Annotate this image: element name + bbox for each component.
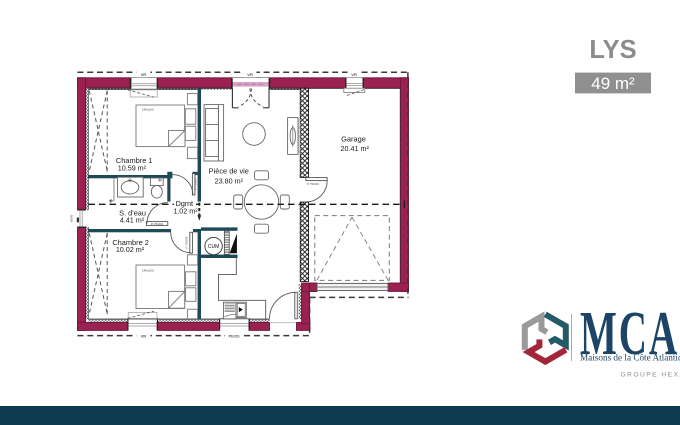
svg-text:P 75/204: P 75/204: [307, 182, 319, 186]
svg-text:60/95: 60/95: [70, 214, 74, 222]
svg-text:PE/20: PE/20: [229, 333, 241, 338]
svg-text:CUM: CUM: [208, 244, 219, 250]
svg-text:10.02 m²: 10.02 m²: [116, 245, 145, 254]
svg-text:10.59 m²: 10.59 m²: [118, 163, 147, 172]
svg-text:P 75/204: P 75/204: [194, 178, 198, 190]
svg-text:Pièce de vie: Pièce de vie: [209, 166, 249, 175]
svg-text:140x200: 140x200: [142, 108, 154, 112]
svg-text:GROUPE HEXAŌM: GROUPE HEXAŌM: [621, 371, 680, 379]
svg-text:P 75/204: P 75/204: [185, 236, 189, 248]
svg-text:P 75/204: P 75/204: [151, 222, 163, 226]
svg-text:140x200: 140x200: [142, 268, 154, 272]
svg-text:23.80 m²: 23.80 m²: [215, 177, 244, 186]
svg-text:VR: VR: [141, 72, 147, 77]
svg-text:49 m²: 49 m²: [591, 74, 635, 93]
svg-text:Garage: Garage: [341, 135, 366, 144]
svg-text:VR: VR: [247, 72, 253, 77]
svg-text:VR: VR: [141, 334, 147, 339]
svg-text:1.02 m²: 1.02 m²: [173, 207, 198, 216]
svg-text:VR: VR: [351, 72, 357, 77]
svg-text:Maisons de la Côte Atlantique: Maisons de la Côte Atlantique: [580, 353, 680, 363]
svg-text:20.41 m²: 20.41 m²: [341, 144, 370, 153]
svg-text:LYS: LYS: [589, 36, 636, 64]
svg-text:4.41 m²: 4.41 m²: [120, 216, 145, 225]
